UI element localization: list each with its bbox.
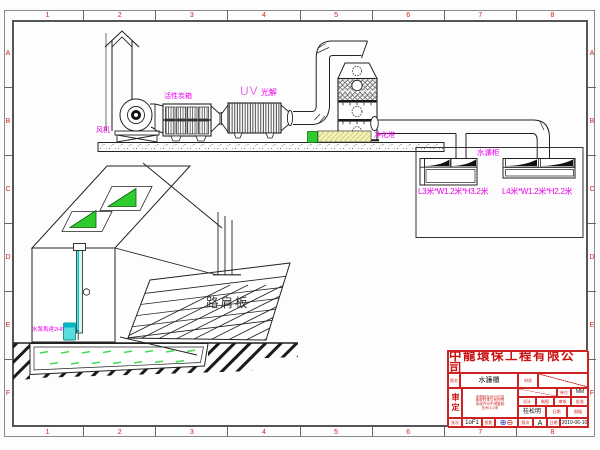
sump-pump <box>308 132 318 143</box>
approve-label: 批准 <box>571 397 589 406</box>
water-curtain-cabinet-left <box>420 159 477 186</box>
duct-to-cabinets <box>377 120 550 159</box>
cad-sheet: 12345678 12345678 ABCDEF ABCDEF <box>0 0 600 450</box>
material-label: 材质 <box>518 373 538 388</box>
pump-label: 水泵馬達2HP <box>32 328 65 334</box>
unit-value: MM <box>571 388 589 397</box>
projection-symbols: ⊕ ⊖ <box>495 418 518 428</box>
fan-drawing <box>115 99 163 142</box>
fan-label: 风机 <box>96 127 110 134</box>
drawing-name: 水濂櫃 <box>460 373 518 388</box>
drawing-name-label: 图名 <box>448 373 460 388</box>
date-value: 2019-06-10 <box>560 418 589 428</box>
rev-label: 版次 <box>518 418 533 428</box>
design-label: 设计 <box>518 397 536 406</box>
company-name: 中龍環保工程有限公司 <box>448 351 589 373</box>
projection-symbol-icon: ⊖ <box>507 419 514 427</box>
date-label: 日期 <box>546 406 567 418</box>
size-label: 图幅 <box>567 406 589 418</box>
approver-stamp: 审定 <box>448 388 462 418</box>
tower-inlet-flange <box>371 117 379 131</box>
activated-carbon-box <box>163 104 211 141</box>
check-label: 审核 <box>554 397 571 406</box>
projection-label: 投影 <box>482 418 495 428</box>
designer-name: 桂松明 <box>518 406 546 418</box>
tower-sump <box>308 131 372 143</box>
unit-label: 单位 <box>557 388 571 397</box>
dimensions-left: L3米*W1.2米*H3.2米 <box>418 188 488 196</box>
projection-symbol-icon: ⊕ <box>500 419 507 427</box>
dimensions-right: L4米*W1.2米*H2.2米 <box>502 188 572 196</box>
draft-label: 制图 <box>536 397 554 406</box>
date-field-label: 日期 <box>547 418 560 428</box>
sheet-number: 1oF1 <box>462 418 482 428</box>
pipe-valve <box>83 289 89 295</box>
foundation-band <box>98 143 444 152</box>
sheet-label: 张次 <box>448 418 462 428</box>
uv-photolysis-unit <box>228 103 293 138</box>
carbon-box-label: 活性炭箱 <box>164 93 192 100</box>
notes: 本图纸及设计内容 版权归本公司所有 未经许可不得复制 比例:1/2米 <box>462 388 518 418</box>
rev-value: A <box>533 418 547 428</box>
blank-cell <box>518 388 557 397</box>
tower-label: 净化塔 <box>374 132 395 139</box>
uv-label: UV 光解 <box>240 85 277 97</box>
title-block: 中龍環保工程有限公司 图名 水濂櫃 材质 审定 本图纸及设计内容 版权归本公司所… <box>447 350 588 427</box>
water-curtain-cabinet-right <box>503 159 575 179</box>
water-cabinet-label: 水濂柜 <box>477 149 500 157</box>
material-value <box>538 373 589 388</box>
duct-reducer <box>211 105 228 132</box>
exhaust-arrow-icon <box>105 31 139 47</box>
walkway-label: 路肩板 <box>206 292 250 311</box>
